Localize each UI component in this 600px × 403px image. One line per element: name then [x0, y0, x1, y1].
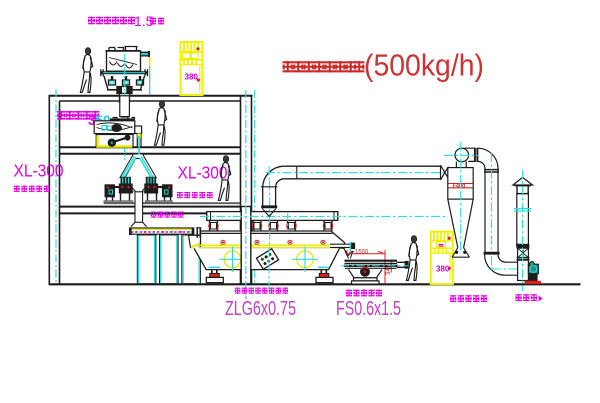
svg-text:FS0.6x1.5: FS0.6x1.5: [336, 297, 401, 320]
svg-text:XL-300: XL-300: [178, 163, 228, 183]
svg-text:(500kg/h): (500kg/h): [364, 48, 484, 83]
svg-text:1500: 1500: [355, 250, 369, 256]
svg-text:380: 380: [436, 265, 450, 274]
svg-text:F400: F400: [453, 183, 466, 189]
svg-text:380: 380: [185, 73, 199, 82]
svg-text:1.5: 1.5: [134, 13, 154, 29]
svg-text:ZLG6x0.75: ZLG6x0.75: [225, 297, 296, 320]
svg-text:XL-300: XL-300: [14, 161, 64, 181]
